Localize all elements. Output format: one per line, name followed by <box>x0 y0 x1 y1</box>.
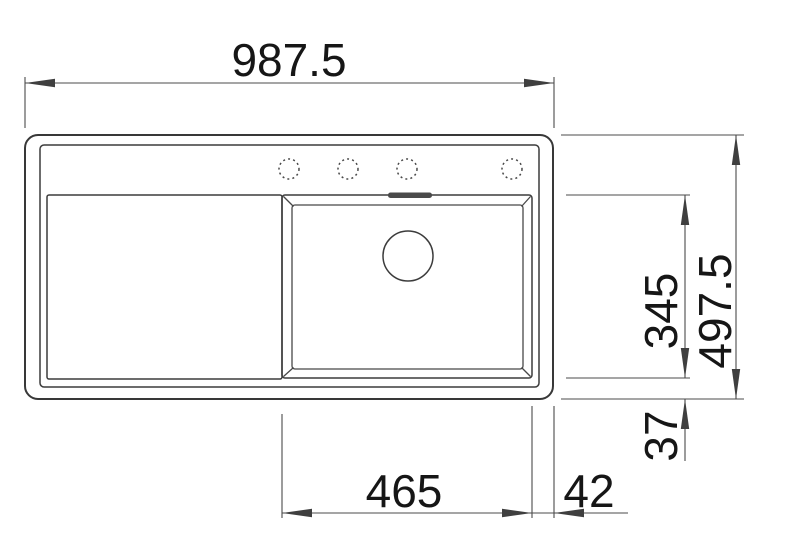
dim-overall-depth-label: 497.5 <box>689 253 741 368</box>
dim-side-offset-label: 42 <box>563 465 614 517</box>
bowl-chamfer-bottom-left <box>284 368 294 377</box>
arrowhead-down <box>681 348 689 378</box>
technical-drawing-canvas: 987.5 497.5 345 37 <box>0 0 800 534</box>
arrowhead-up <box>681 195 689 225</box>
arrowhead-down <box>732 369 740 399</box>
dim-overall-width: 987.5 <box>25 34 554 128</box>
sink-outline-group <box>25 135 553 399</box>
dim-bottom-offset-label: 37 <box>635 410 687 461</box>
dim-overall-width-label: 987.5 <box>231 34 346 86</box>
dim-bottom-group: 465 42 <box>282 406 628 518</box>
arrowhead-right <box>502 509 532 517</box>
dim-bowl-width-label: 465 <box>366 465 443 517</box>
sink-dimension-drawing: 987.5 497.5 345 37 <box>0 0 800 534</box>
dim-right-side-group: 497.5 345 37 <box>561 135 744 462</box>
bowl-chamfer-top-left <box>284 197 294 207</box>
arrowhead-up <box>732 135 740 165</box>
sink-outer-rim <box>25 135 553 399</box>
faucet-hole-2 <box>338 159 358 179</box>
drain-circle <box>383 231 433 281</box>
bowl-inner-edge <box>292 205 523 369</box>
faucet-hole-4 <box>502 159 522 179</box>
arrowhead-right <box>524 79 554 87</box>
bowl-chamfer-top-right <box>522 197 531 207</box>
sink-deck-edge <box>40 145 539 387</box>
bowl-outer-rim <box>282 195 532 378</box>
dim-bowl-depth-label: 345 <box>635 273 687 350</box>
bowl-chamfer-bottom-right <box>522 368 531 377</box>
overflow-slot <box>388 193 432 199</box>
faucet-hole-3 <box>397 159 417 179</box>
drainboard <box>47 195 282 379</box>
faucet-hole-1 <box>279 159 299 179</box>
arrowhead-left <box>25 79 55 87</box>
arrowhead-left <box>282 509 312 517</box>
